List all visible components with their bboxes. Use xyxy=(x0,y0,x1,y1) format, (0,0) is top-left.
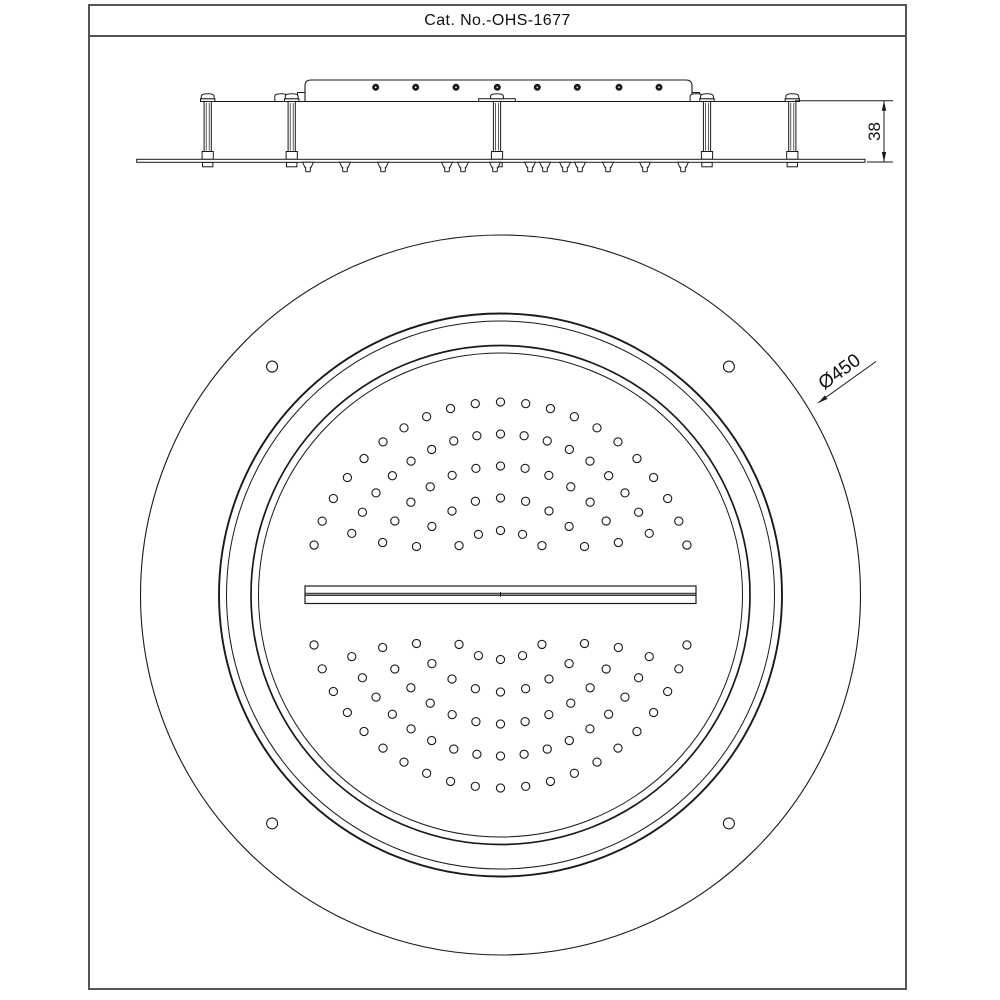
spray-hole xyxy=(348,529,356,537)
spray-hole xyxy=(602,665,610,673)
spray-hole xyxy=(496,688,504,696)
post-column xyxy=(703,102,710,152)
spray-hole xyxy=(407,684,415,692)
post-pad xyxy=(287,162,297,167)
spray-hole xyxy=(471,782,479,790)
spray-hole xyxy=(593,758,601,766)
spray-hole xyxy=(543,745,551,753)
spray-nozzle xyxy=(378,162,389,171)
spray-hole xyxy=(522,497,530,505)
spray-hole xyxy=(471,497,479,505)
spray-hole xyxy=(318,517,326,525)
spray-hole xyxy=(645,529,653,537)
spray-hole xyxy=(565,659,573,667)
spray-nozzle xyxy=(303,162,314,171)
post-column xyxy=(204,102,211,152)
post-foot xyxy=(701,152,712,160)
spray-hole xyxy=(358,674,366,682)
spray-hole xyxy=(379,643,387,651)
spray-hole xyxy=(593,424,601,432)
spray-hole xyxy=(645,653,653,661)
inlet-hole-center xyxy=(618,86,620,88)
dimension-arrow-down xyxy=(882,152,886,162)
spray-hole xyxy=(545,711,553,719)
spray-hole xyxy=(448,507,456,515)
spray-hole xyxy=(473,432,481,440)
spray-hole xyxy=(518,530,526,538)
post-pad xyxy=(702,162,712,167)
spray-hole xyxy=(664,494,672,502)
spray-hole xyxy=(448,675,456,683)
spray-hole xyxy=(565,445,573,453)
post-cap-dome xyxy=(285,94,298,99)
spray-hole xyxy=(567,483,575,491)
spray-hole xyxy=(567,699,575,707)
spray-hole xyxy=(614,538,622,546)
spray-hole xyxy=(428,736,436,744)
spray-hole xyxy=(650,708,658,716)
spray-hole xyxy=(379,538,387,546)
spray-hole xyxy=(474,652,482,660)
spray-hole xyxy=(496,655,504,663)
spray-hole xyxy=(428,445,436,453)
post-cap-dome xyxy=(491,94,504,99)
post-column xyxy=(288,102,295,152)
spray-hole xyxy=(496,462,504,470)
spray-hole xyxy=(496,398,504,406)
spray-hole xyxy=(633,727,641,735)
spray-hole xyxy=(521,718,529,726)
spray-nozzle xyxy=(458,162,469,171)
spray-hole xyxy=(565,736,573,744)
technical-drawing-canvas: 38 Ø450 xyxy=(0,0,1000,1000)
spray-hole xyxy=(358,508,366,516)
spray-hole xyxy=(428,522,436,530)
spray-hole xyxy=(472,464,480,472)
spray-nozzle xyxy=(640,162,651,171)
spray-hole xyxy=(329,494,337,502)
spray-hole xyxy=(614,643,622,651)
post-cap-dome xyxy=(701,94,714,99)
spray-hole xyxy=(522,400,530,408)
spray-hole xyxy=(522,782,530,790)
spray-hole xyxy=(426,699,434,707)
spray-hole xyxy=(580,639,588,647)
spray-hole xyxy=(455,541,463,549)
spray-hole xyxy=(318,665,326,673)
spray-hole xyxy=(372,489,380,497)
spray-hole xyxy=(605,710,613,718)
inlet-hole-center xyxy=(536,86,538,88)
spray-hole xyxy=(391,517,399,525)
spray-hole xyxy=(407,725,415,733)
spray-hole xyxy=(471,400,479,408)
spray-hole xyxy=(496,784,504,792)
post-column xyxy=(493,102,500,152)
spray-hole xyxy=(586,457,594,465)
spray-nozzle xyxy=(340,162,351,171)
drawing-sheet: Cat. No.-OHS-1677 38 Ø450 xyxy=(0,0,1000,1000)
side-elevation-view: 38 xyxy=(137,80,893,172)
spray-hole xyxy=(614,438,622,446)
spray-hole xyxy=(379,438,387,446)
spray-hole xyxy=(538,541,546,549)
spray-hole xyxy=(310,541,318,549)
spray-nozzle xyxy=(575,162,586,171)
spray-nozzle xyxy=(442,162,453,171)
spray-hole xyxy=(423,413,431,421)
spray-hole xyxy=(496,720,504,728)
spray-hole xyxy=(360,727,368,735)
spray-nozzle xyxy=(603,162,614,171)
inlet-hole-center xyxy=(576,86,578,88)
spray-hole xyxy=(602,517,610,525)
spray-hole xyxy=(329,687,337,695)
inlet-hole-center xyxy=(375,86,377,88)
plan-view: Ø450 xyxy=(141,235,877,955)
spray-hole xyxy=(407,457,415,465)
post-pad xyxy=(787,162,797,167)
spray-hole xyxy=(428,659,436,667)
spray-hole xyxy=(400,758,408,766)
spray-hole xyxy=(379,744,387,752)
spray-hole xyxy=(348,653,356,661)
spray-hole xyxy=(448,711,456,719)
spray-hole xyxy=(570,413,578,421)
post-pad xyxy=(203,162,213,167)
spray-hole xyxy=(426,483,434,491)
spray-hole xyxy=(450,437,458,445)
spray-hole xyxy=(471,685,479,693)
spray-hole xyxy=(586,684,594,692)
spray-hole xyxy=(664,687,672,695)
spray-nozzle xyxy=(525,162,536,171)
spray-hole xyxy=(633,454,641,462)
spray-hole xyxy=(412,542,420,550)
spray-hole xyxy=(675,517,683,525)
post-column xyxy=(789,102,796,152)
spray-hole xyxy=(545,675,553,683)
spray-hole xyxy=(412,639,420,647)
spray-hole xyxy=(407,498,415,506)
spray-hole xyxy=(496,494,504,502)
spray-hole xyxy=(570,769,578,777)
spray-hole xyxy=(621,693,629,701)
post-foot xyxy=(202,152,213,160)
post-foot xyxy=(286,152,297,160)
spray-hole xyxy=(520,750,528,758)
inlet-hole-center xyxy=(455,86,457,88)
post-cap-dome xyxy=(786,94,799,99)
spray-hole xyxy=(473,750,481,758)
spray-hole xyxy=(400,424,408,432)
spray-hole xyxy=(538,640,546,648)
spray-hole xyxy=(474,530,482,538)
spray-nozzle xyxy=(560,162,571,171)
spray-hole xyxy=(543,437,551,445)
spray-hole xyxy=(372,693,380,701)
spray-hole xyxy=(546,404,554,412)
spray-hole xyxy=(634,508,642,516)
spray-hole xyxy=(520,432,528,440)
bolt-hole xyxy=(267,361,278,372)
spray-hole xyxy=(545,507,553,515)
spray-nozzle xyxy=(540,162,551,171)
dimension-arrow-up xyxy=(882,101,886,111)
spray-hole xyxy=(496,752,504,760)
post-foot xyxy=(787,152,798,160)
spray-hole xyxy=(545,471,553,479)
spray-hole xyxy=(360,454,368,462)
spray-hole xyxy=(450,745,458,753)
spray-hole xyxy=(683,641,691,649)
spray-hole xyxy=(634,674,642,682)
spray-hole xyxy=(472,718,480,726)
inlet-hole-center xyxy=(415,86,417,88)
spray-hole xyxy=(496,430,504,438)
height-dimension-text: 38 xyxy=(865,122,884,141)
spray-hole xyxy=(388,472,396,480)
spray-hole xyxy=(388,710,396,718)
spray-hole xyxy=(496,526,504,534)
inlet-hole-center xyxy=(496,86,498,88)
spray-hole xyxy=(310,641,318,649)
spray-hole xyxy=(518,652,526,660)
spray-hole xyxy=(448,471,456,479)
spray-hole xyxy=(565,522,573,530)
bolt-hole xyxy=(267,818,278,829)
bolt-hole xyxy=(723,818,734,829)
spray-hole xyxy=(546,777,554,785)
spray-hole xyxy=(521,464,529,472)
spray-hole xyxy=(446,777,454,785)
spray-hole xyxy=(455,640,463,648)
diameter-leader-arrow xyxy=(818,395,827,403)
inlet-hole-center xyxy=(658,86,660,88)
spray-hole xyxy=(621,489,629,497)
spray-hole xyxy=(586,498,594,506)
spray-hole xyxy=(683,541,691,549)
bolt-hole xyxy=(723,361,734,372)
spray-hole xyxy=(614,744,622,752)
spray-hole xyxy=(343,473,351,481)
post-cap-dome xyxy=(201,94,214,99)
spray-hole xyxy=(650,473,658,481)
spray-hole xyxy=(586,725,594,733)
spray-nozzle xyxy=(678,162,689,171)
spray-hole xyxy=(605,472,613,480)
spray-hole xyxy=(423,769,431,777)
spray-nozzle xyxy=(490,162,501,171)
spray-hole xyxy=(343,708,351,716)
post-foot xyxy=(491,152,502,160)
spray-hole xyxy=(391,665,399,673)
spray-hole xyxy=(446,404,454,412)
spray-hole xyxy=(522,685,530,693)
spray-hole xyxy=(675,665,683,673)
spray-hole xyxy=(580,542,588,550)
